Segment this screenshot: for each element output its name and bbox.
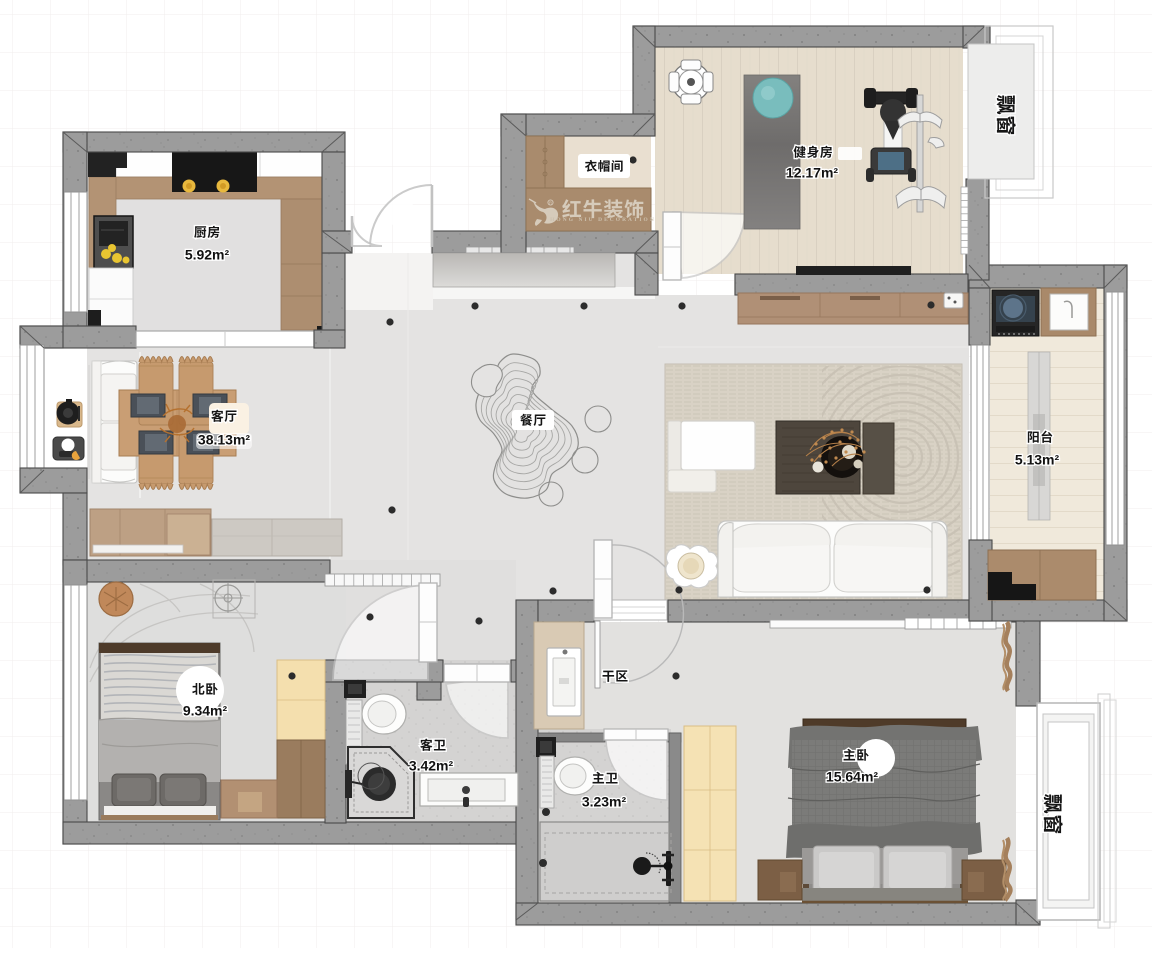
svg-text:HONG NIU DECORATION: HONG NIU DECORATION [550,217,656,223]
svg-text:3.23m²: 3.23m² [582,794,627,810]
svg-text:5.13m²: 5.13m² [1015,452,1060,468]
svg-text:3.42m²: 3.42m² [409,758,454,774]
svg-text:5.92m²: 5.92m² [185,247,230,263]
svg-text:9.34m²: 9.34m² [183,703,228,719]
svg-text:38.13m²: 38.13m² [198,432,250,448]
svg-text:R: R [549,201,552,206]
svg-text:12.17m²: 12.17m² [786,165,838,181]
svg-text:15.64m²: 15.64m² [826,769,878,785]
